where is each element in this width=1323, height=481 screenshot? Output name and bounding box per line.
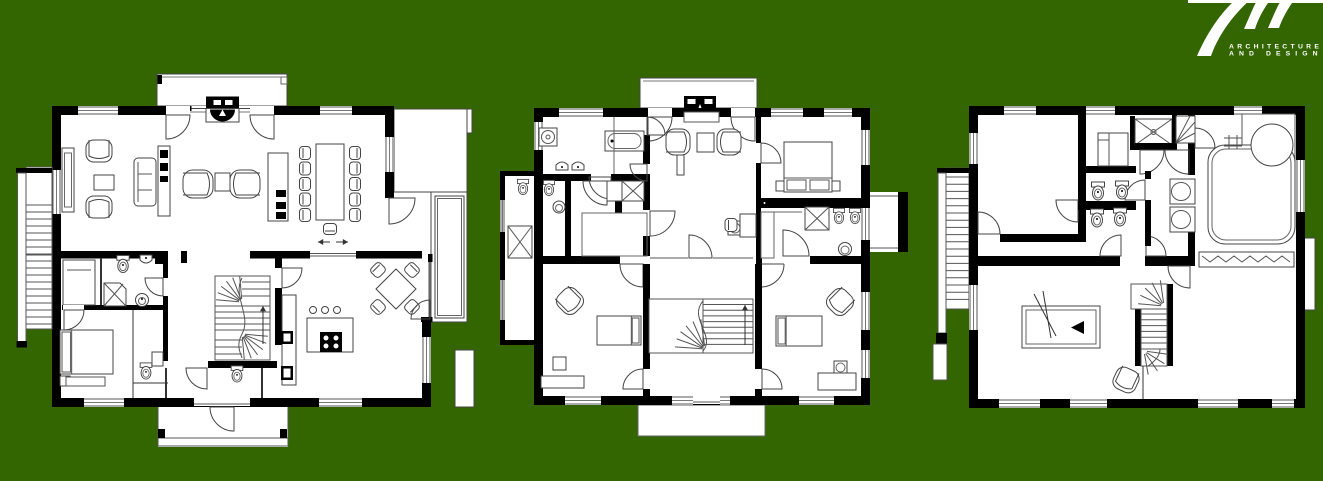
- svg-text:AND DESIGN: AND DESIGN: [1229, 51, 1323, 58]
